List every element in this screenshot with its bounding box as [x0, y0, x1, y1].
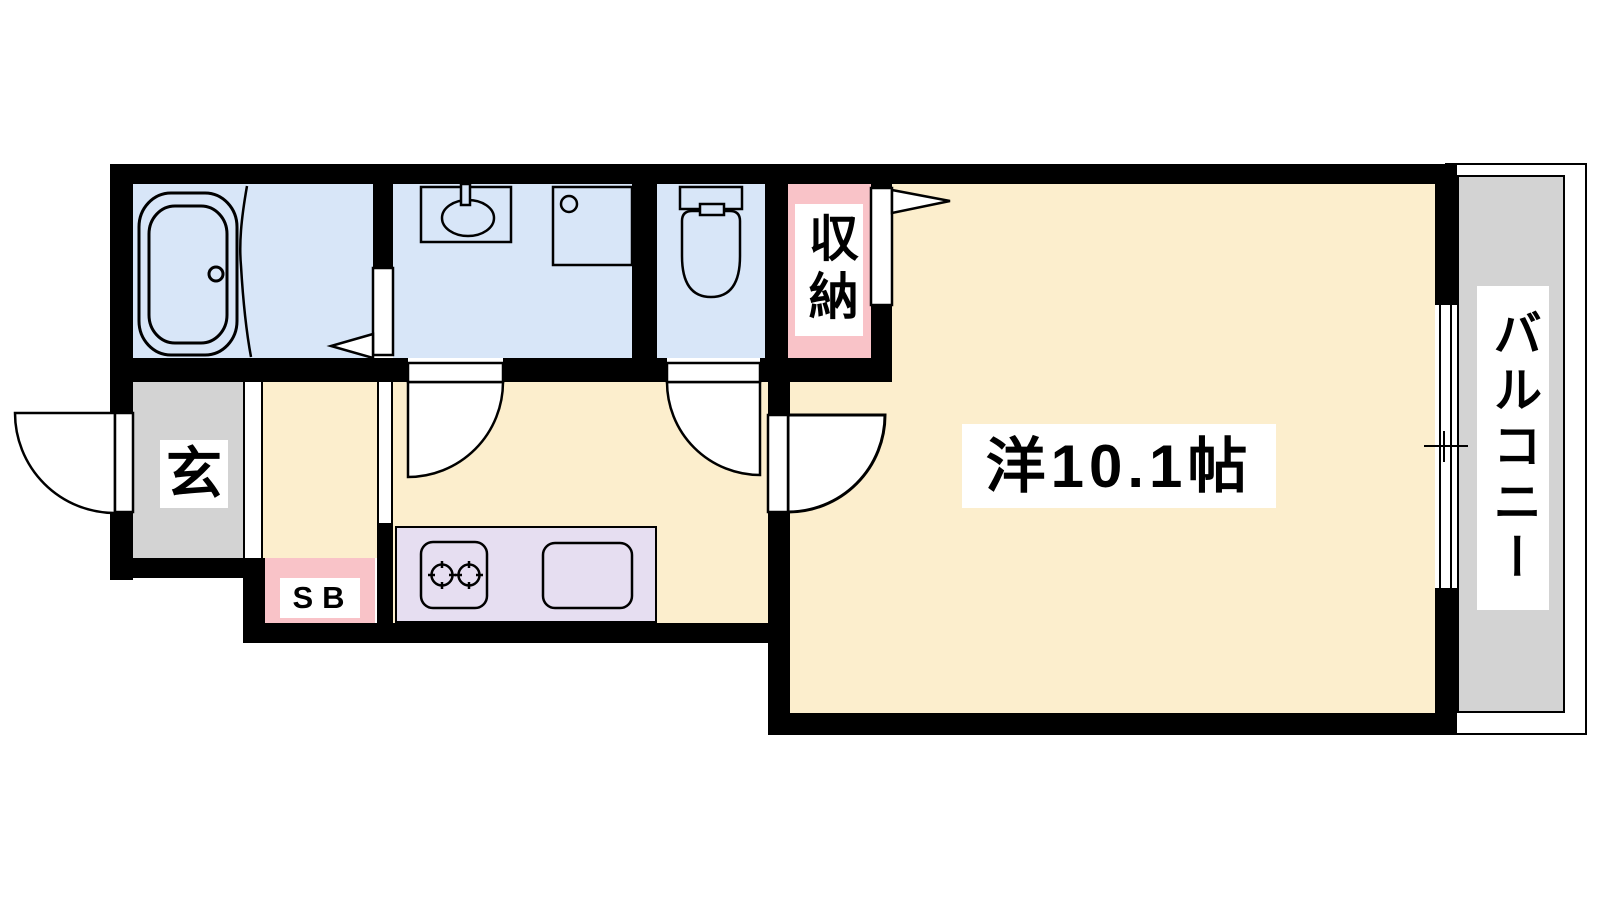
stove-icon [421, 542, 487, 608]
shoe-box-label: SB [280, 578, 360, 618]
entrance-door-swing-icon [15, 413, 133, 513]
washroom-door-swing-icon [408, 363, 503, 477]
bath-partition-curve-icon [240, 186, 251, 357]
mainroom-door-swing-icon [768, 415, 885, 512]
kitchen-sink-icon [543, 543, 632, 608]
bath-door-pennant-icon [331, 268, 393, 358]
western-room-label: 洋10.1帖 [962, 424, 1276, 508]
closet-label: 収納 [795, 204, 863, 336]
fixtures-layer [0, 0, 1600, 900]
floor-plan: 玄 SB 収納 洋10.1帖 バルコニー [0, 0, 1600, 900]
balcony-label: バルコニー [1477, 286, 1549, 610]
toilet-door-swing-icon [667, 363, 760, 475]
washing-machine-pan-icon [553, 187, 632, 265]
vanity-sink-icon [421, 184, 511, 242]
sliding-window-icon [1424, 305, 1468, 588]
bathtub-icon [139, 193, 237, 355]
toilet-icon [680, 187, 742, 297]
entrance-label: 玄 [160, 440, 228, 508]
closet-door-pennant-icon [871, 188, 950, 305]
